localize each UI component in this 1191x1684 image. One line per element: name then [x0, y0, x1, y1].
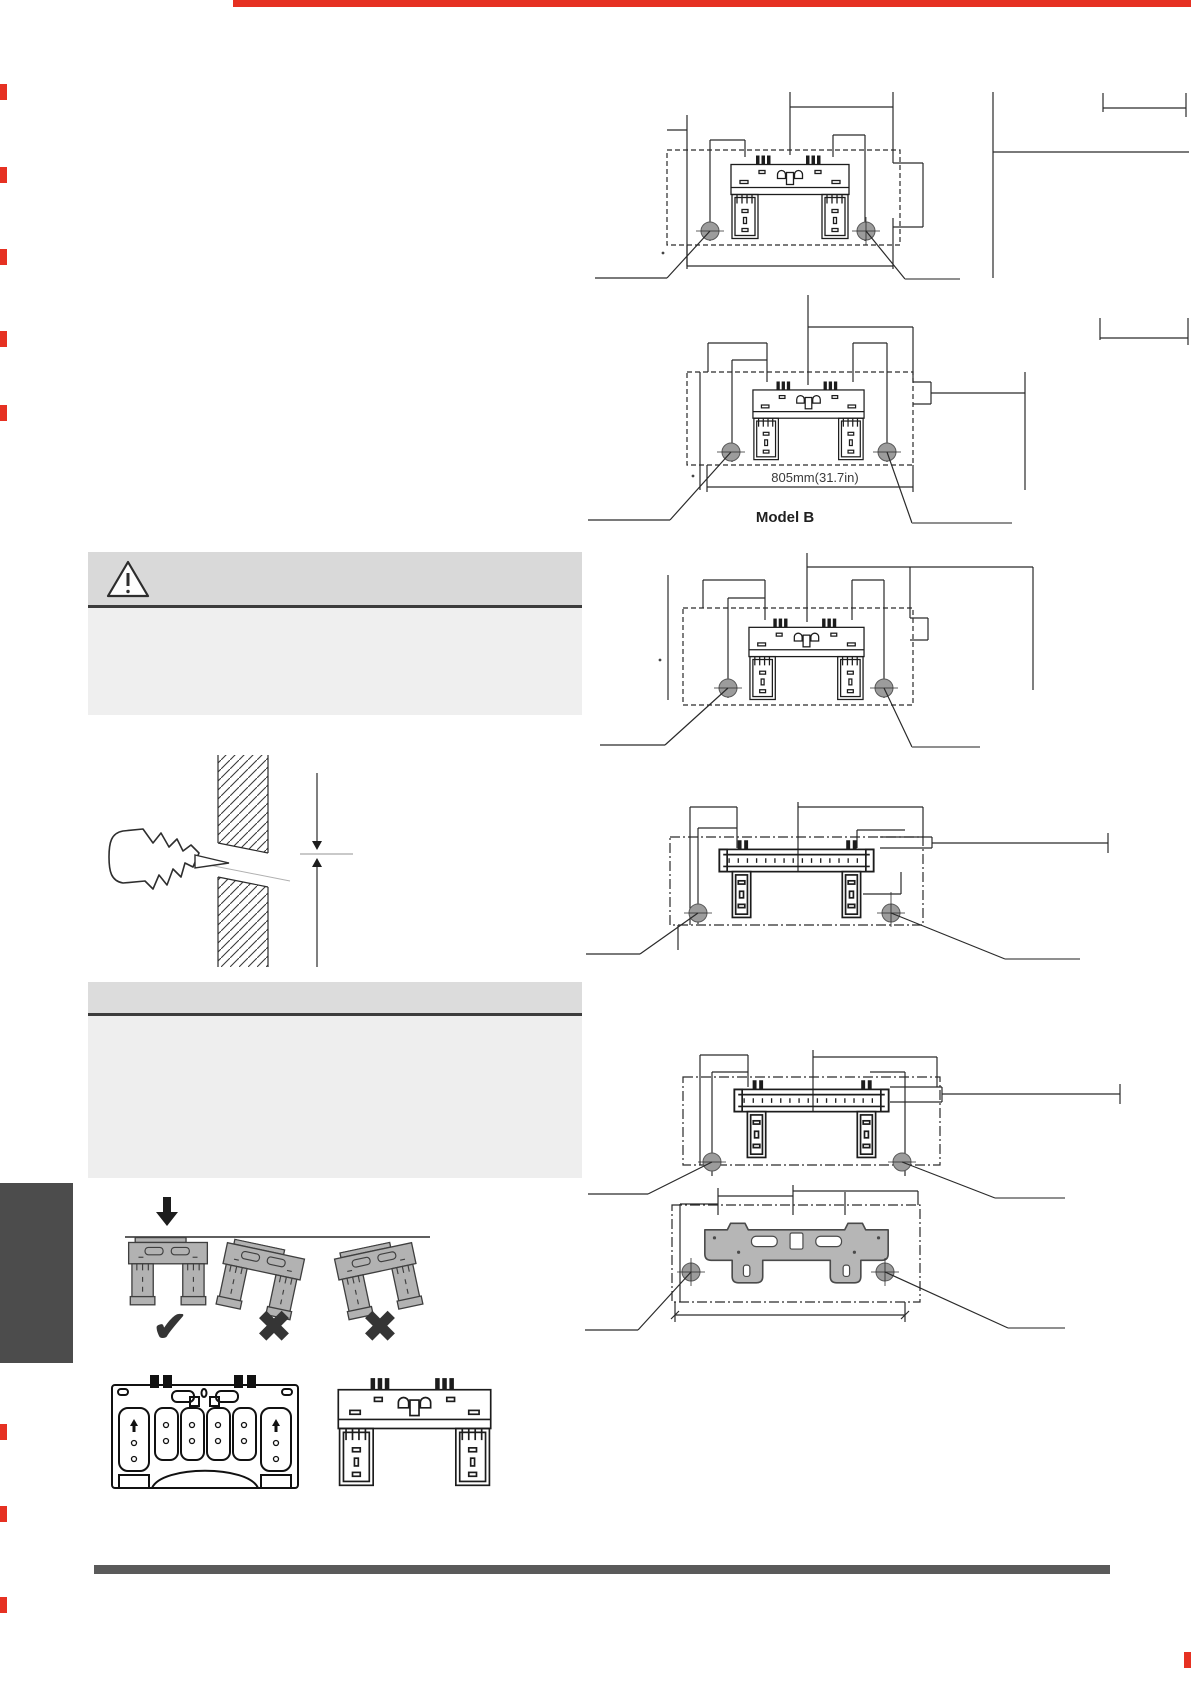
dimension-lines [678, 802, 1108, 950]
caution-box [88, 552, 582, 715]
leader-lines [600, 688, 980, 747]
mounting-plate-drawing [719, 840, 873, 917]
mounting-plate-drawing [731, 156, 849, 239]
mounting-plate-dimension-diagram-4 [560, 740, 1191, 965]
notice-box-header [88, 982, 582, 1016]
red-top-print-bar [233, 0, 1191, 7]
wall-section-hatched [218, 755, 268, 967]
notice-box-body [88, 1016, 582, 1178]
cross-mark-icon: ✖ [348, 1306, 412, 1348]
leader-lines [585, 1272, 1065, 1330]
wall-drilling-diagram [95, 715, 365, 975]
red-edge-mark [1184, 1652, 1191, 1668]
dimension-lines [667, 92, 1189, 278]
caution-box-body [88, 608, 582, 715]
drill-icon [109, 829, 229, 889]
hole-slope-dimension [300, 773, 353, 967]
red-edge-mark [0, 84, 7, 100]
red-edge-mark [0, 405, 7, 421]
red-edge-mark [0, 1424, 7, 1440]
mounting-plate-dimension-diagram-2 [560, 290, 1191, 540]
mounting-plate-drawing [749, 619, 864, 700]
dimension-lines [668, 553, 1033, 700]
notice-box [88, 982, 582, 1178]
mounting-plate-dimension-diagram-6 [560, 1180, 1191, 1355]
manual-page: 805mm(31.7in) Model B [0, 0, 1191, 1684]
u-shape-backplate-drawing [338, 1378, 490, 1485]
mounting-plate-drawing [734, 1080, 888, 1157]
full-backplate-drawing [112, 1375, 298, 1488]
red-edge-mark [0, 167, 7, 183]
page-edge-tab [0, 1183, 73, 1363]
mounting-plate-dimension-diagram-5 [560, 960, 1191, 1205]
red-edge-mark [0, 331, 7, 347]
leader-lines [595, 231, 960, 279]
leader-lines [586, 913, 1080, 959]
cross-mark-icon: ✖ [242, 1306, 306, 1348]
mounting-plate-detail-drawings [105, 1372, 505, 1497]
footer-rule-bar [94, 1565, 1110, 1574]
down-arrow-icon [156, 1197, 178, 1226]
plate-orientation-diagram [110, 1185, 440, 1320]
check-mark-icon: ✔ [138, 1306, 202, 1348]
red-edge-mark [0, 1506, 7, 1522]
caution-box-header [88, 552, 582, 608]
mounting-plate-drawing [753, 381, 864, 459]
model-b-caption: Model B [700, 509, 870, 526]
dimension-lines [700, 295, 1188, 492]
dimension-label-805mm: 805mm(31.7in) [735, 470, 895, 485]
red-edge-mark [0, 1597, 7, 1613]
warning-triangle-icon [106, 559, 150, 599]
mounting-plate-drawing [705, 1223, 888, 1283]
plate-level-correct [129, 1238, 208, 1305]
red-edge-mark [0, 249, 7, 265]
mounting-plate-dimension-diagram-1 [560, 55, 1191, 305]
